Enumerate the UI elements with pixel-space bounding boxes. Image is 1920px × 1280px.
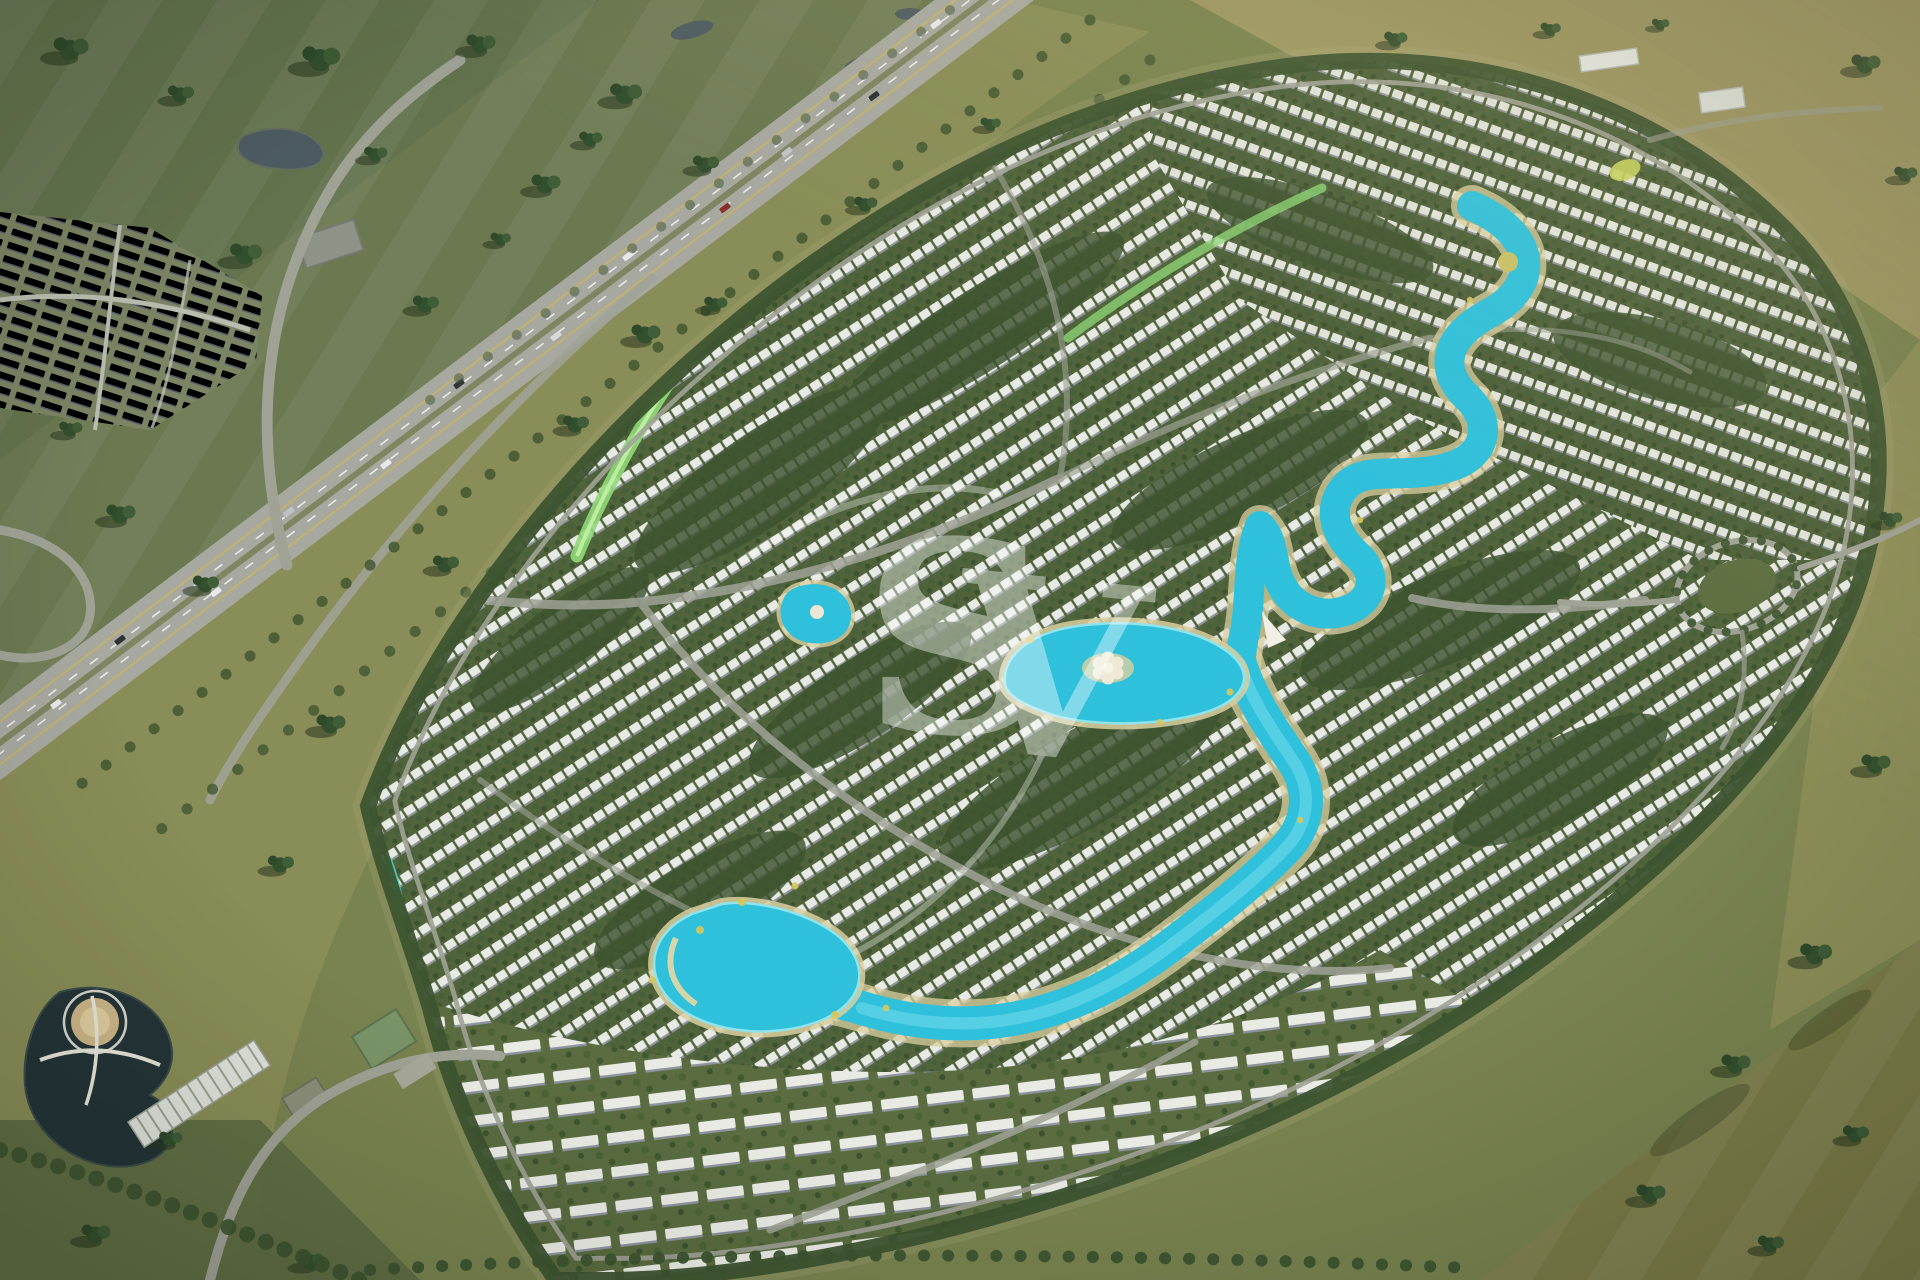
aerial-scene: S V: [0, 0, 1920, 1280]
vignette-overlay: [0, 0, 1920, 1280]
aerial-render: S V: [0, 0, 1920, 1280]
